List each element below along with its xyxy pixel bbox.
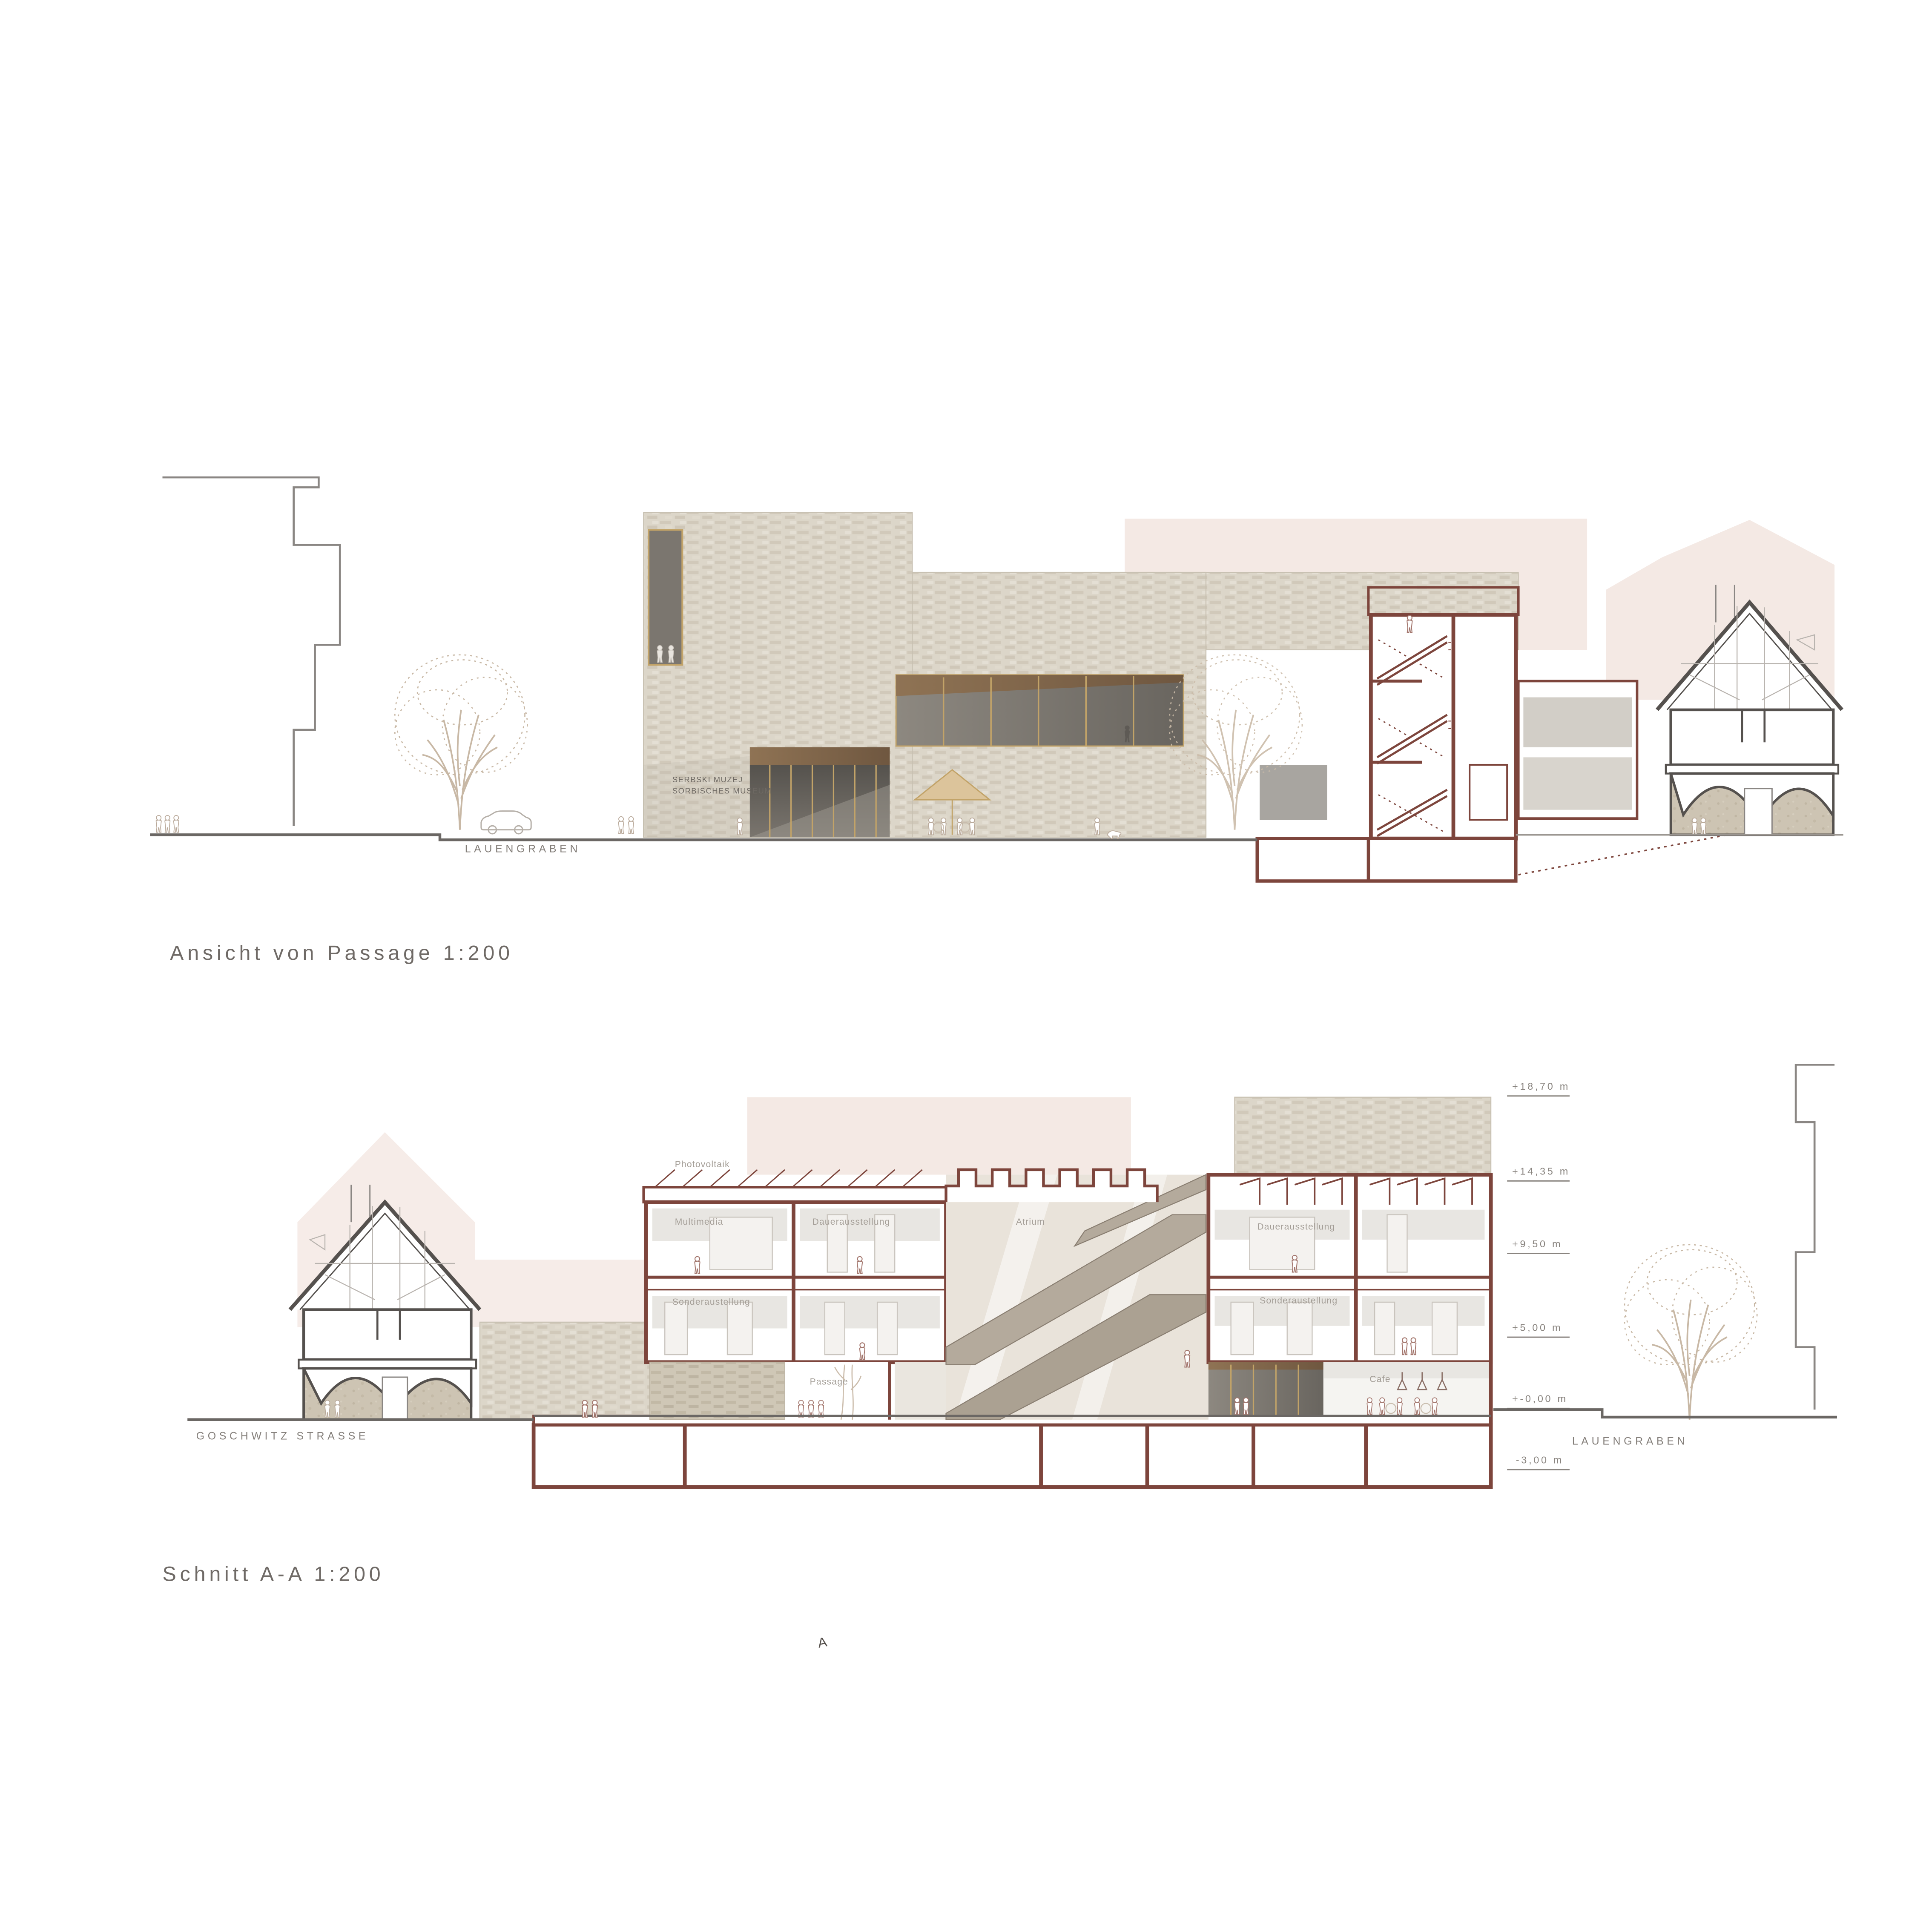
street-label-lauengraben-bottom: LAUENGRABEN — [1572, 1435, 1688, 1447]
street-label-lauengraben-top: LAUENGRABEN — [465, 843, 581, 855]
right-room-block: Dauerausstellung Sonderaustellung — [1209, 1097, 1491, 1425]
level-mark: -3,00 m — [1516, 1454, 1564, 1465]
street-tree — [395, 655, 527, 830]
room-label-sonderausstellung-left: Sonderaustellung — [672, 1297, 750, 1307]
room-label-cafe: Cafe — [1369, 1375, 1390, 1384]
museum-facade: SERBSKI MUZEJ SORBISCHES MUSEUM — [643, 512, 1206, 837]
right-building-outline — [1796, 1065, 1834, 1410]
room-label-multimedia: Multimedia — [675, 1217, 723, 1227]
museum-sign-line2: SORBISCHES MUSEUM — [672, 787, 772, 795]
tower-basement — [1257, 838, 1516, 881]
passage-level: Passage — [650, 1362, 946, 1420]
elevation-drawing: SERBSKI MUZEJ SORBISCHES MUSEUM — [150, 477, 1843, 965]
mid-block-section — [1519, 681, 1637, 818]
elevation-title: Ansicht von Passage 1:200 — [170, 942, 514, 965]
ground-line-right — [1493, 1410, 1837, 1417]
stair-figure — [1407, 615, 1412, 632]
grey-volume — [1260, 765, 1327, 820]
basement — [534, 1416, 1491, 1487]
background-silhouette — [747, 1097, 1131, 1175]
atrium-figure — [1185, 1350, 1190, 1367]
connecting-wall — [480, 1322, 650, 1420]
section-drawing: +18,70 m +14,35 m +9,50 m +5,00 m +-0,00… — [163, 1065, 1837, 1651]
vertical-window — [649, 530, 682, 665]
entrance-soffit — [750, 747, 890, 765]
house-door — [382, 1377, 408, 1420]
room-label-sonderausstellung-right: Sonderaustellung — [1260, 1296, 1338, 1306]
museum-sign-line1: SERBSKI MUZEJ — [672, 775, 743, 784]
section-title: Schnitt A-A 1:200 — [163, 1562, 385, 1585]
background-band — [475, 1260, 652, 1327]
room-label-dauerausstellung-right: Dauerausstellung — [1257, 1222, 1335, 1232]
room-label-dauerausstellung-left: Dauerausstellung — [812, 1217, 890, 1227]
level-mark: +-0,00 m — [1512, 1393, 1568, 1404]
car-outline — [481, 811, 531, 834]
room-label-atrium: Atrium — [1016, 1217, 1045, 1227]
section-marker-a: A — [816, 1634, 828, 1651]
level-mark: +9,50 m — [1512, 1238, 1562, 1249]
level-mark: +5,00 m — [1512, 1322, 1562, 1333]
level-mark: +14,35 m — [1512, 1166, 1570, 1177]
ribbon-window — [896, 675, 1183, 746]
drawing-sheet: SERBSKI MUZEJ SORBISCHES MUSEUM — [0, 0, 1932, 1932]
room-label-passage: Passage — [810, 1377, 848, 1387]
architectural-drawing: SERBSKI MUZEJ SORBISCHES MUSEUM — [0, 0, 1932, 1932]
house-door — [1745, 789, 1772, 835]
street-label-goschwitz: GOSCHWITZ STRASSE — [196, 1430, 369, 1442]
elevation-marks: +18,70 m +14,35 m +9,50 m +5,00 m +-0,00… — [1507, 1081, 1570, 1470]
left-building-outline — [163, 477, 340, 826]
left-room-block: Photovoltaik Mult — [643, 1160, 950, 1362]
cafe: Cafe — [1209, 1362, 1491, 1416]
rear-brick-band — [1234, 1097, 1491, 1175]
street-tree — [1625, 1245, 1757, 1420]
room-label-photovoltaik: Photovoltaik — [675, 1160, 730, 1169]
level-mark: +18,70 m — [1512, 1081, 1570, 1092]
atrium: Atrium — [946, 1170, 1209, 1420]
